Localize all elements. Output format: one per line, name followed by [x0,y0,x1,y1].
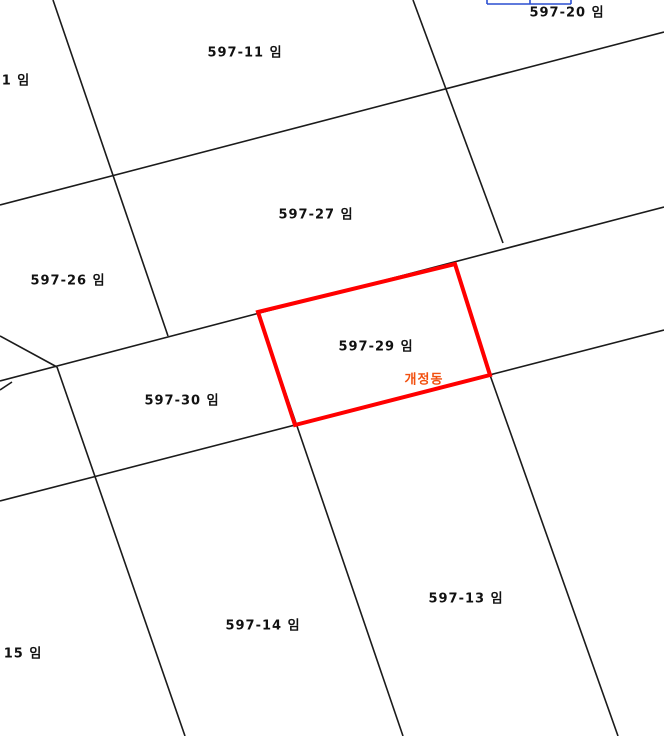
parcel-label: 1 임 [2,70,31,89]
parcel-label: 15 임 [4,643,43,662]
parcel-boundary-line [0,32,664,205]
parcel-label: 597-26 임 [30,270,105,289]
parcel-boundary-line [57,367,185,736]
highlighted-parcel-label: 597-29 임 [338,336,413,355]
parcel-label: 597-30 임 [144,390,219,409]
parcel-boundary-line [0,382,12,390]
map-canvas [0,0,664,736]
parcel-label: 597-20 임 [529,2,604,21]
parcel-boundary-line [490,375,618,736]
parcel-label: 597-11 임 [207,42,282,61]
parcel-label: 597-14 임 [225,615,300,634]
parcel-boundary-line [0,336,57,367]
district-name-label: 개정동 [405,369,444,388]
parcel-label: 597-13 임 [428,588,503,607]
parcel-boundary-line [413,0,503,243]
cadastral-map-viewport[interactable]: 597-20 임597-11 임1 임597-27 임597-26 임597-3… [0,0,664,736]
parcel-label: 597-27 임 [278,204,353,223]
